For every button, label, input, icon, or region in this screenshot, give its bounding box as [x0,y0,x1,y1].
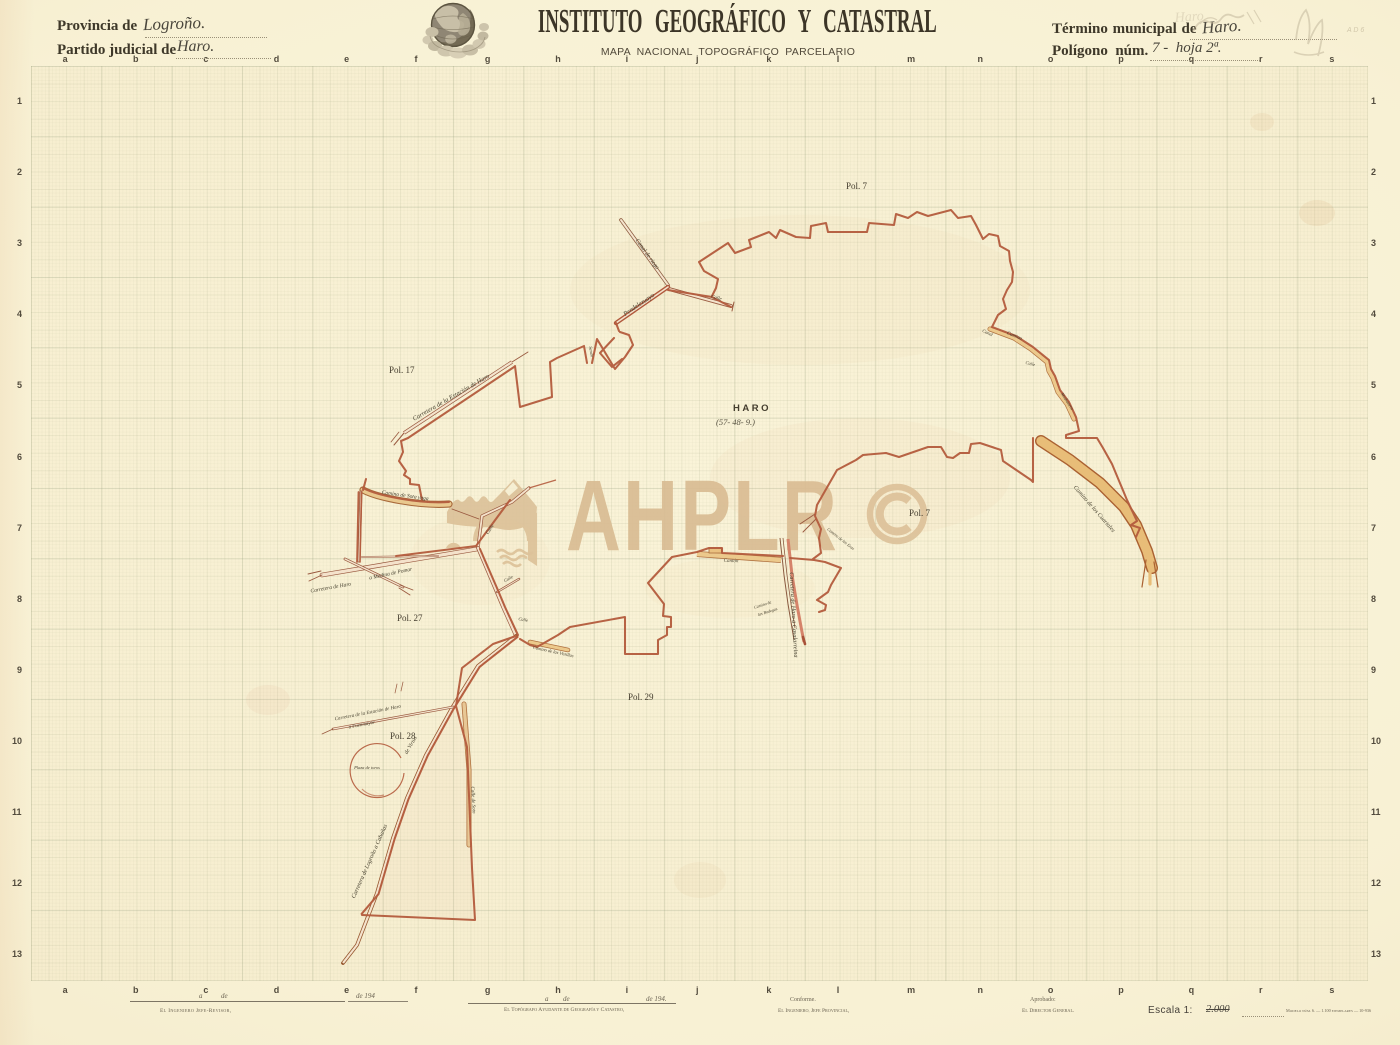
svg-text:(57- 48- 9.): (57- 48- 9.) [716,417,755,427]
svg-text:Pol. 7: Pol. 7 [846,181,868,191]
svg-text:Plaza de toros: Plaza de toros [353,765,380,770]
svg-text:a Medina de Pomar: a Medina de Pomar [369,566,414,581]
svg-text:Cantón: Cantón [724,559,739,565]
svg-text:Carretera de Haro: Carretera de Haro [310,581,352,594]
svg-text:Pol. 29: Pol. 29 [628,692,654,702]
svg-text:A D 6: A D 6 [1346,27,1364,34]
svg-text:Haro: Haro [1173,9,1204,26]
svg-text:HARO: HARO [733,403,771,414]
svg-text:a Fuenmayor: a Fuenmayor [348,720,375,730]
svg-text:Carretera de la Estación de Ha: Carretera de la Estación de Haro [334,705,401,723]
svg-text:Calle: Calle [518,616,528,623]
svg-text:Pol. 27: Pol. 27 [397,613,423,623]
svg-text:Senda: Senda [588,346,595,358]
svg-text:Pol. 17: Pol. 17 [389,365,415,375]
svg-text:Carretera de la Estación de Ha: Carretera de la Estación de Haro [412,372,492,422]
svg-text:Pol. 7: Pol. 7 [909,508,931,518]
svg-text:Calle: Calle [1025,360,1036,367]
